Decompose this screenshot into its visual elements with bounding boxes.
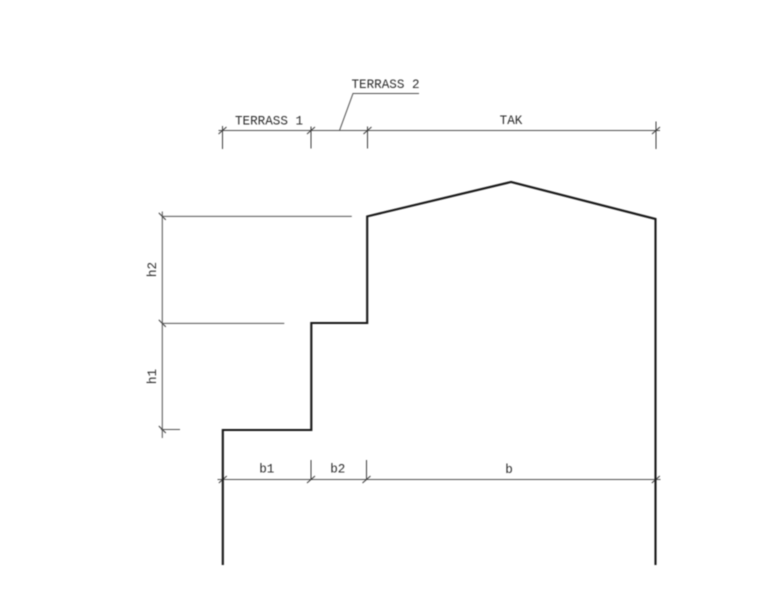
svg-text:TERRASS 1: TERRASS 1 bbox=[235, 115, 303, 129]
svg-text:b2: b2 bbox=[330, 463, 345, 477]
svg-text:b: b bbox=[505, 463, 513, 477]
svg-text:TERRASS 2: TERRASS 2 bbox=[351, 78, 419, 92]
svg-text:TAK: TAK bbox=[500, 114, 523, 128]
svg-text:b1: b1 bbox=[259, 463, 274, 477]
svg-text:h2: h2 bbox=[146, 262, 160, 277]
svg-text:h1: h1 bbox=[146, 369, 160, 384]
